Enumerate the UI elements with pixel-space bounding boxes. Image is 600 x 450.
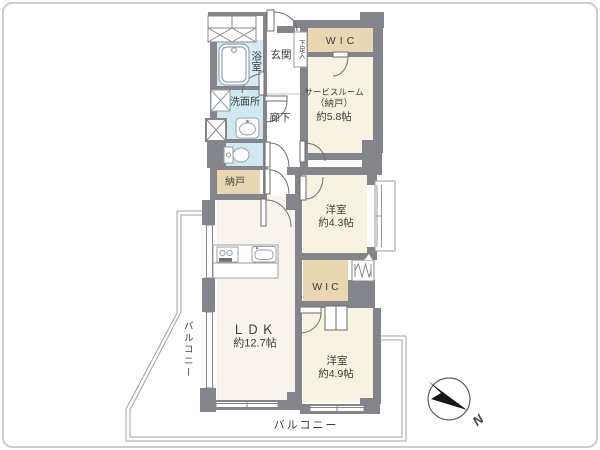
wall-segment (208, 12, 267, 16)
label-bath: 浴室 (251, 51, 262, 72)
toilet-icon (224, 147, 249, 163)
wash-basin-icon (236, 118, 259, 138)
wall-segment (207, 140, 226, 168)
label-hallway: 廊下 (270, 113, 291, 124)
wall-segment (263, 12, 267, 33)
label-bedroom49-line2: 約4.9帖 (318, 369, 354, 380)
label-service-room-line1: サービスルーム (304, 88, 363, 97)
washer-pan-icon (211, 90, 230, 111)
wall-segment (202, 278, 215, 312)
label-shoe-cabinet: 下足入 (297, 39, 304, 59)
label-ldk-line1: ＬＤＫ (232, 324, 276, 337)
wall-segment (295, 167, 302, 402)
wall-segment (226, 139, 263, 143)
label-balcony-left: バルコニー (182, 321, 192, 379)
wall-segment (373, 20, 383, 153)
bathtub-icon (219, 44, 249, 85)
pipe-space-icon (206, 119, 226, 141)
label-service-room-line2: （納戸） (315, 99, 353, 109)
label-washroom: 洗面所 (230, 98, 260, 108)
label-bedroom43-line2: 約4.3帖 (318, 218, 354, 229)
label-service-room-line3: 約5.8帖 (316, 112, 352, 123)
wall-segment (210, 194, 267, 200)
label-bedroom49-line1: 洋室 (327, 356, 348, 367)
label-bedroom43-line1: 洋室 (326, 205, 347, 216)
label-ldk-line2: 約12.7帖 (233, 339, 276, 350)
wall-segment (217, 86, 263, 90)
room-ldk-floor (217, 196, 295, 402)
wall-segment (217, 166, 263, 170)
label-entrance: 玄関 (271, 50, 292, 61)
wall-segment (277, 26, 295, 33)
label-nando: 納戸 (225, 178, 245, 188)
wall-segment (348, 280, 375, 308)
toilet-door (265, 142, 289, 167)
kitchen-counter-icon (213, 245, 278, 278)
label-wic-middle: WIC (312, 282, 341, 293)
label-balcony-bottom: バルコニー (274, 421, 339, 432)
wall-segment (280, 400, 302, 410)
nando-door (265, 169, 289, 194)
wall-segment (302, 153, 362, 160)
closet-top-icon (208, 16, 256, 42)
wall-segment (202, 200, 215, 225)
compass-icon (428, 378, 470, 420)
wall-segment (373, 308, 381, 404)
label-wic-top: WIC (326, 36, 358, 47)
floor-plan-drawing (0, 0, 600, 450)
floor-plan-image: 浴室 洗面所 玄関 下足入 廊下 納戸 WIC サービスルーム （納戸） 約5.… (0, 0, 600, 450)
